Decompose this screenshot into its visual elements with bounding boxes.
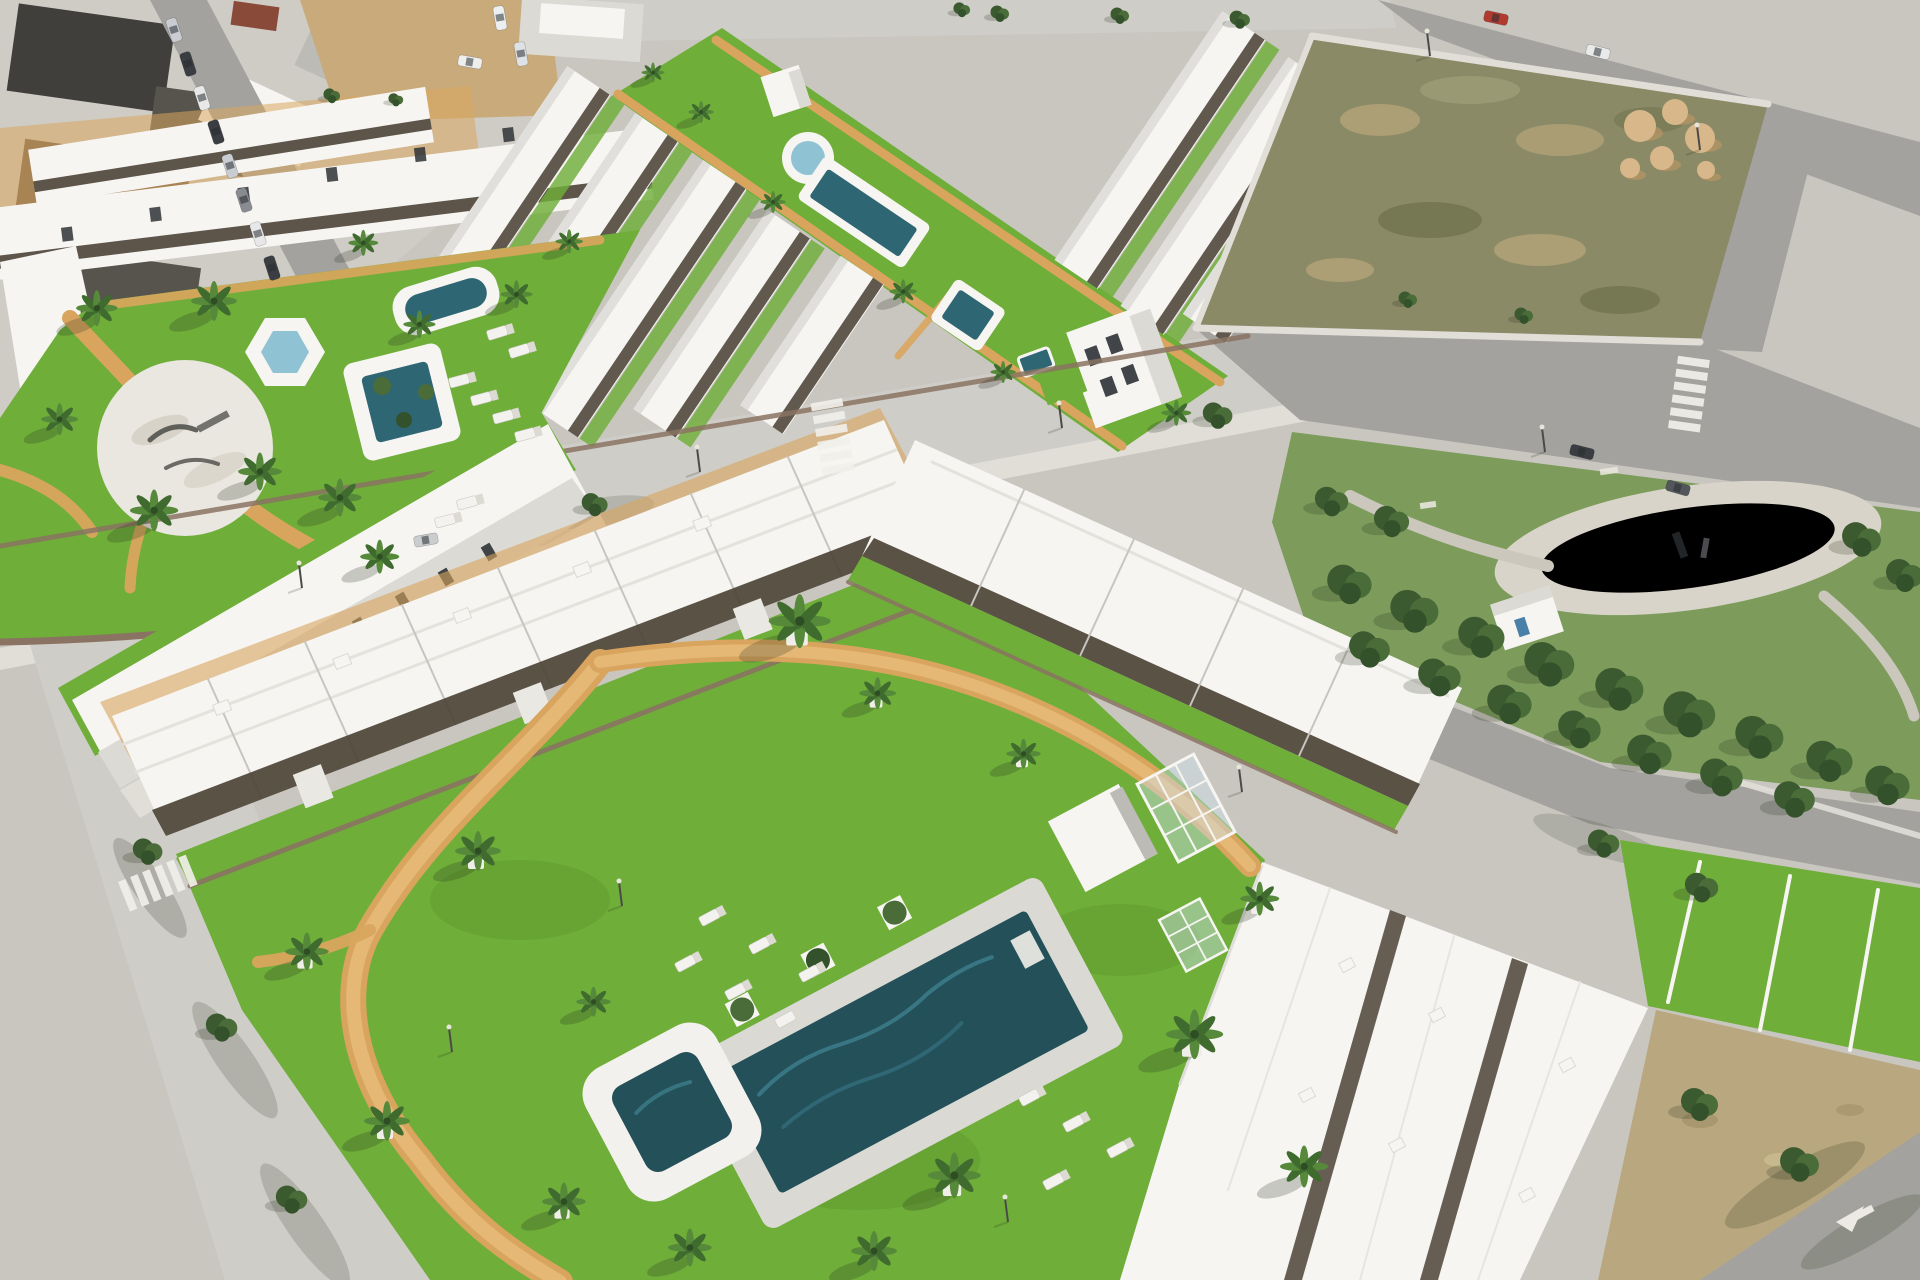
window [414, 147, 427, 162]
sand-pile [1650, 146, 1674, 170]
pool-palm-island [418, 384, 434, 400]
tree-foliage [1211, 414, 1225, 428]
lamp-head [1057, 401, 1062, 406]
palm-crown-center [795, 616, 804, 625]
palm-crown-center [150, 507, 157, 514]
tree-foliage [1639, 753, 1661, 775]
tree-foliage [1896, 574, 1914, 592]
sand-pile [1662, 99, 1688, 125]
lamp-head [617, 879, 622, 884]
tree-foliage [996, 13, 1005, 22]
tree-foliage [1538, 662, 1562, 686]
tree-foliage [1608, 687, 1631, 710]
window [61, 227, 74, 242]
car-windshield [421, 536, 429, 545]
tree-foliage [1324, 500, 1340, 516]
palm-crown-center [377, 554, 383, 560]
palm-crown-center [337, 494, 344, 501]
tree-foliage [1499, 703, 1521, 725]
lot-texture [1340, 104, 1420, 136]
palm-crown-center [475, 848, 482, 855]
lamp-head [1695, 123, 1700, 128]
palm-crown-center [1174, 411, 1179, 416]
palm-crown-center [591, 999, 596, 1004]
palm-crown-center [567, 239, 571, 243]
tree-foliage [1712, 776, 1733, 797]
tree-foliage [1339, 583, 1361, 605]
tree-foliage [1520, 315, 1529, 324]
lot-texture [1494, 234, 1586, 266]
pool-palm-island [396, 412, 412, 428]
tree-foliage [1691, 1103, 1709, 1121]
tree-foliage [1383, 520, 1400, 537]
pool-palm-island [373, 377, 391, 395]
tree-foliage [392, 99, 399, 106]
tree-foliage [328, 95, 336, 103]
lamp-head [1540, 425, 1545, 430]
terrain-roads-buildings-layer [0, 0, 1920, 1280]
palm-crown-center [361, 241, 366, 246]
lamp-head [695, 445, 700, 450]
tree-foliage [1694, 886, 1710, 902]
sand-pile [1620, 158, 1640, 178]
tree-foliage [1853, 538, 1872, 557]
tree-foliage [1116, 15, 1125, 24]
palm-crown-center [699, 110, 703, 114]
sand-pile [1697, 161, 1715, 179]
lamp-head [447, 1025, 452, 1030]
tree-foliage [284, 1198, 299, 1213]
tree-foliage [141, 850, 155, 864]
palm-crown-center [211, 298, 218, 305]
lamp-head [1237, 765, 1242, 770]
palm-crown-center [875, 690, 881, 696]
lot-texture [1420, 76, 1520, 104]
tree-foliage [1785, 798, 1805, 818]
tree-foliage [1360, 648, 1380, 668]
plaza [97, 360, 273, 536]
palm-crown-center [514, 292, 519, 297]
car-windshield [465, 57, 473, 66]
palm-crown-center [1257, 896, 1263, 902]
palm-crown-center [57, 416, 63, 422]
palm-crown-center [1190, 1030, 1199, 1039]
palm-crown-center [771, 200, 775, 204]
tree-foliage [1430, 676, 1451, 697]
aerial-render-image [0, 0, 1920, 1280]
palm-crown-center [1300, 1163, 1307, 1170]
tree-foliage [1748, 735, 1771, 758]
tree-foliage [1791, 1163, 1810, 1182]
tree-foliage [1570, 728, 1591, 749]
tree-foliage [1235, 19, 1245, 29]
palm-crown-center [304, 948, 311, 955]
palm-crown-center [257, 468, 264, 475]
lot-texture [1580, 286, 1660, 314]
palm-crown-center [561, 1198, 568, 1205]
tree-foliage [589, 504, 602, 517]
dirt-building-roof [539, 3, 625, 39]
palm-crown-center [950, 1171, 958, 1179]
lot-texture [1306, 258, 1374, 282]
tree-foliage [1877, 784, 1899, 806]
window [149, 207, 162, 222]
palm-crown-center [417, 322, 422, 327]
tree-foliage [1596, 842, 1611, 857]
palm-crown-center [651, 71, 655, 75]
palm-crown-center [871, 1248, 878, 1255]
tree-foliage [1819, 760, 1842, 783]
tree-foliage [1471, 636, 1494, 659]
rock [1836, 1104, 1864, 1116]
palm-crown-center [1001, 370, 1005, 374]
window [502, 127, 515, 142]
palm-crown-center [687, 1244, 694, 1251]
lamp-head [297, 561, 302, 566]
aerial-development-scene [0, 0, 1920, 1280]
car-windshield [495, 13, 504, 21]
tree-foliage [214, 1026, 229, 1041]
lamp-head [1425, 29, 1430, 34]
palm-crown-center [901, 289, 905, 293]
palm-crown-center [94, 305, 100, 311]
lamp-head [1003, 1195, 1008, 1200]
lot-texture [1378, 202, 1482, 238]
sand-pile [1624, 110, 1656, 142]
tree-foliage [1404, 299, 1413, 308]
tree-foliage [1403, 609, 1426, 632]
palm-crown-center [384, 1118, 391, 1125]
window [326, 167, 339, 182]
tree-foliage [1677, 712, 1702, 737]
tree-foliage [958, 9, 966, 17]
lot-texture [1516, 124, 1604, 156]
car-windshield [516, 49, 525, 57]
palm-crown-center [1021, 751, 1026, 756]
